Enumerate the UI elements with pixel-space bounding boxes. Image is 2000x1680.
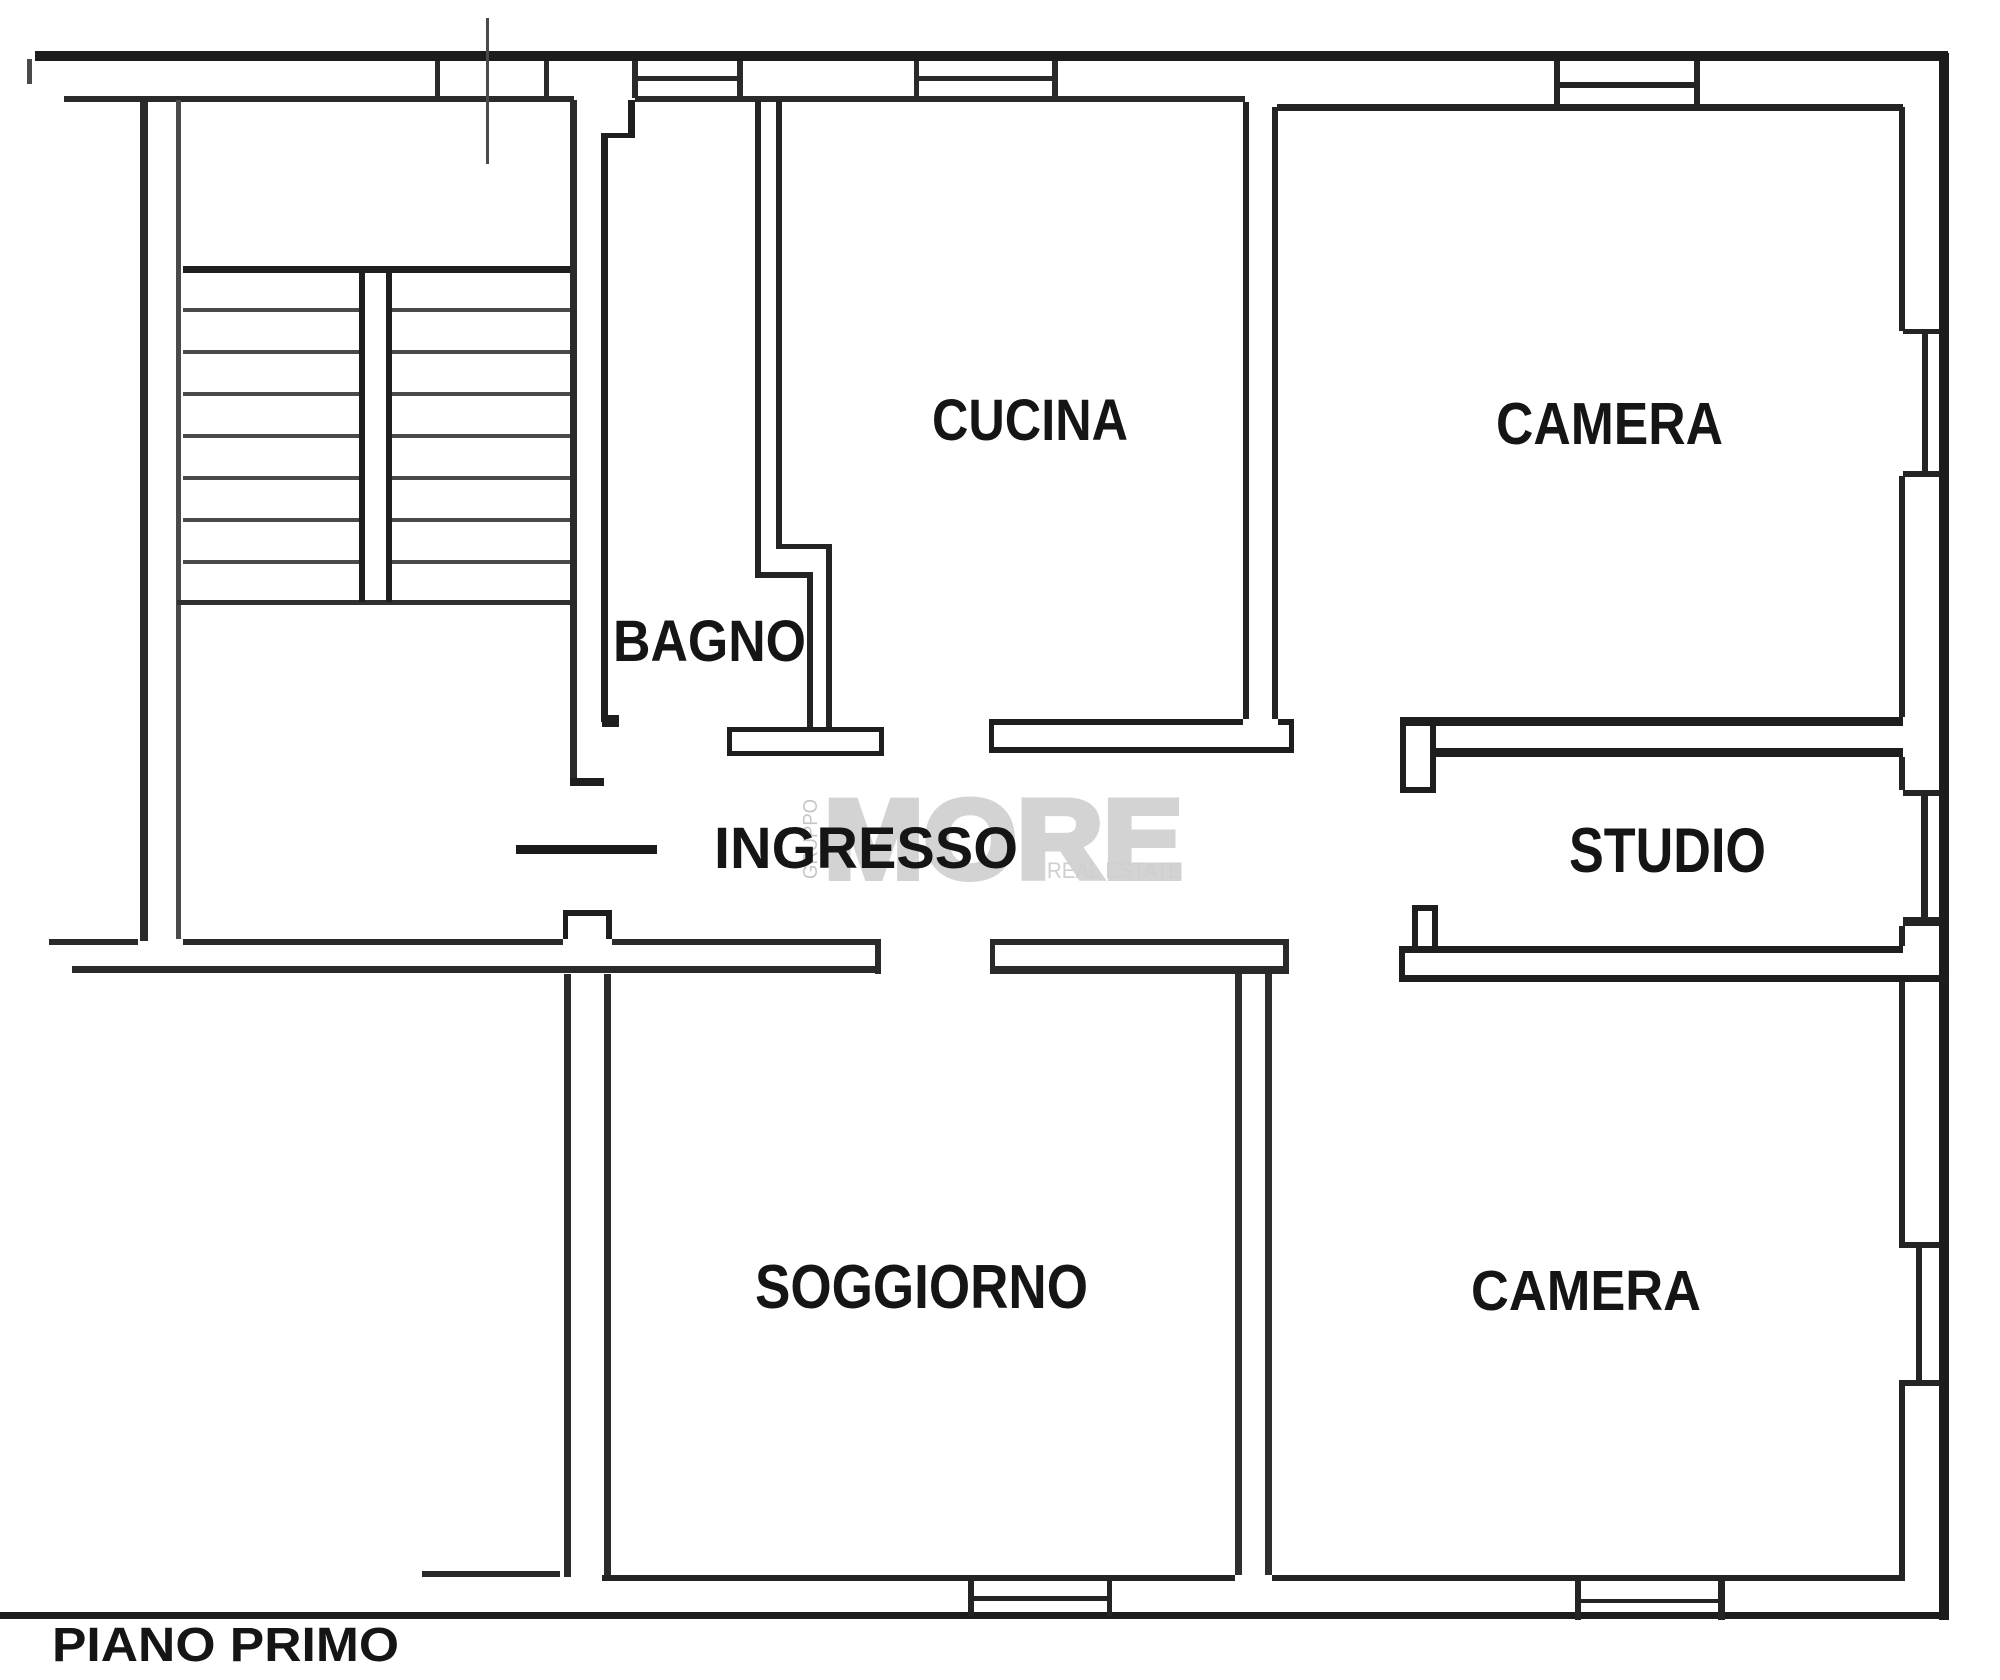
svg-text:CAMERA: CAMERA [1496,391,1723,457]
svg-text:SOGGIORNO: SOGGIORNO [755,1253,1088,1322]
svg-text:BAGNO: BAGNO [613,609,806,674]
svg-text:PIANO PRIMO: PIANO PRIMO [52,1619,399,1672]
svg-text:INGRESSO: INGRESSO [714,816,1018,881]
svg-text:CUCINA: CUCINA [932,388,1128,453]
svg-text:CAMERA: CAMERA [1471,1259,1701,1323]
svg-text:REAL ESTATE: REAL ESTATE [1047,858,1182,883]
svg-text:STUDIO: STUDIO [1569,816,1766,886]
